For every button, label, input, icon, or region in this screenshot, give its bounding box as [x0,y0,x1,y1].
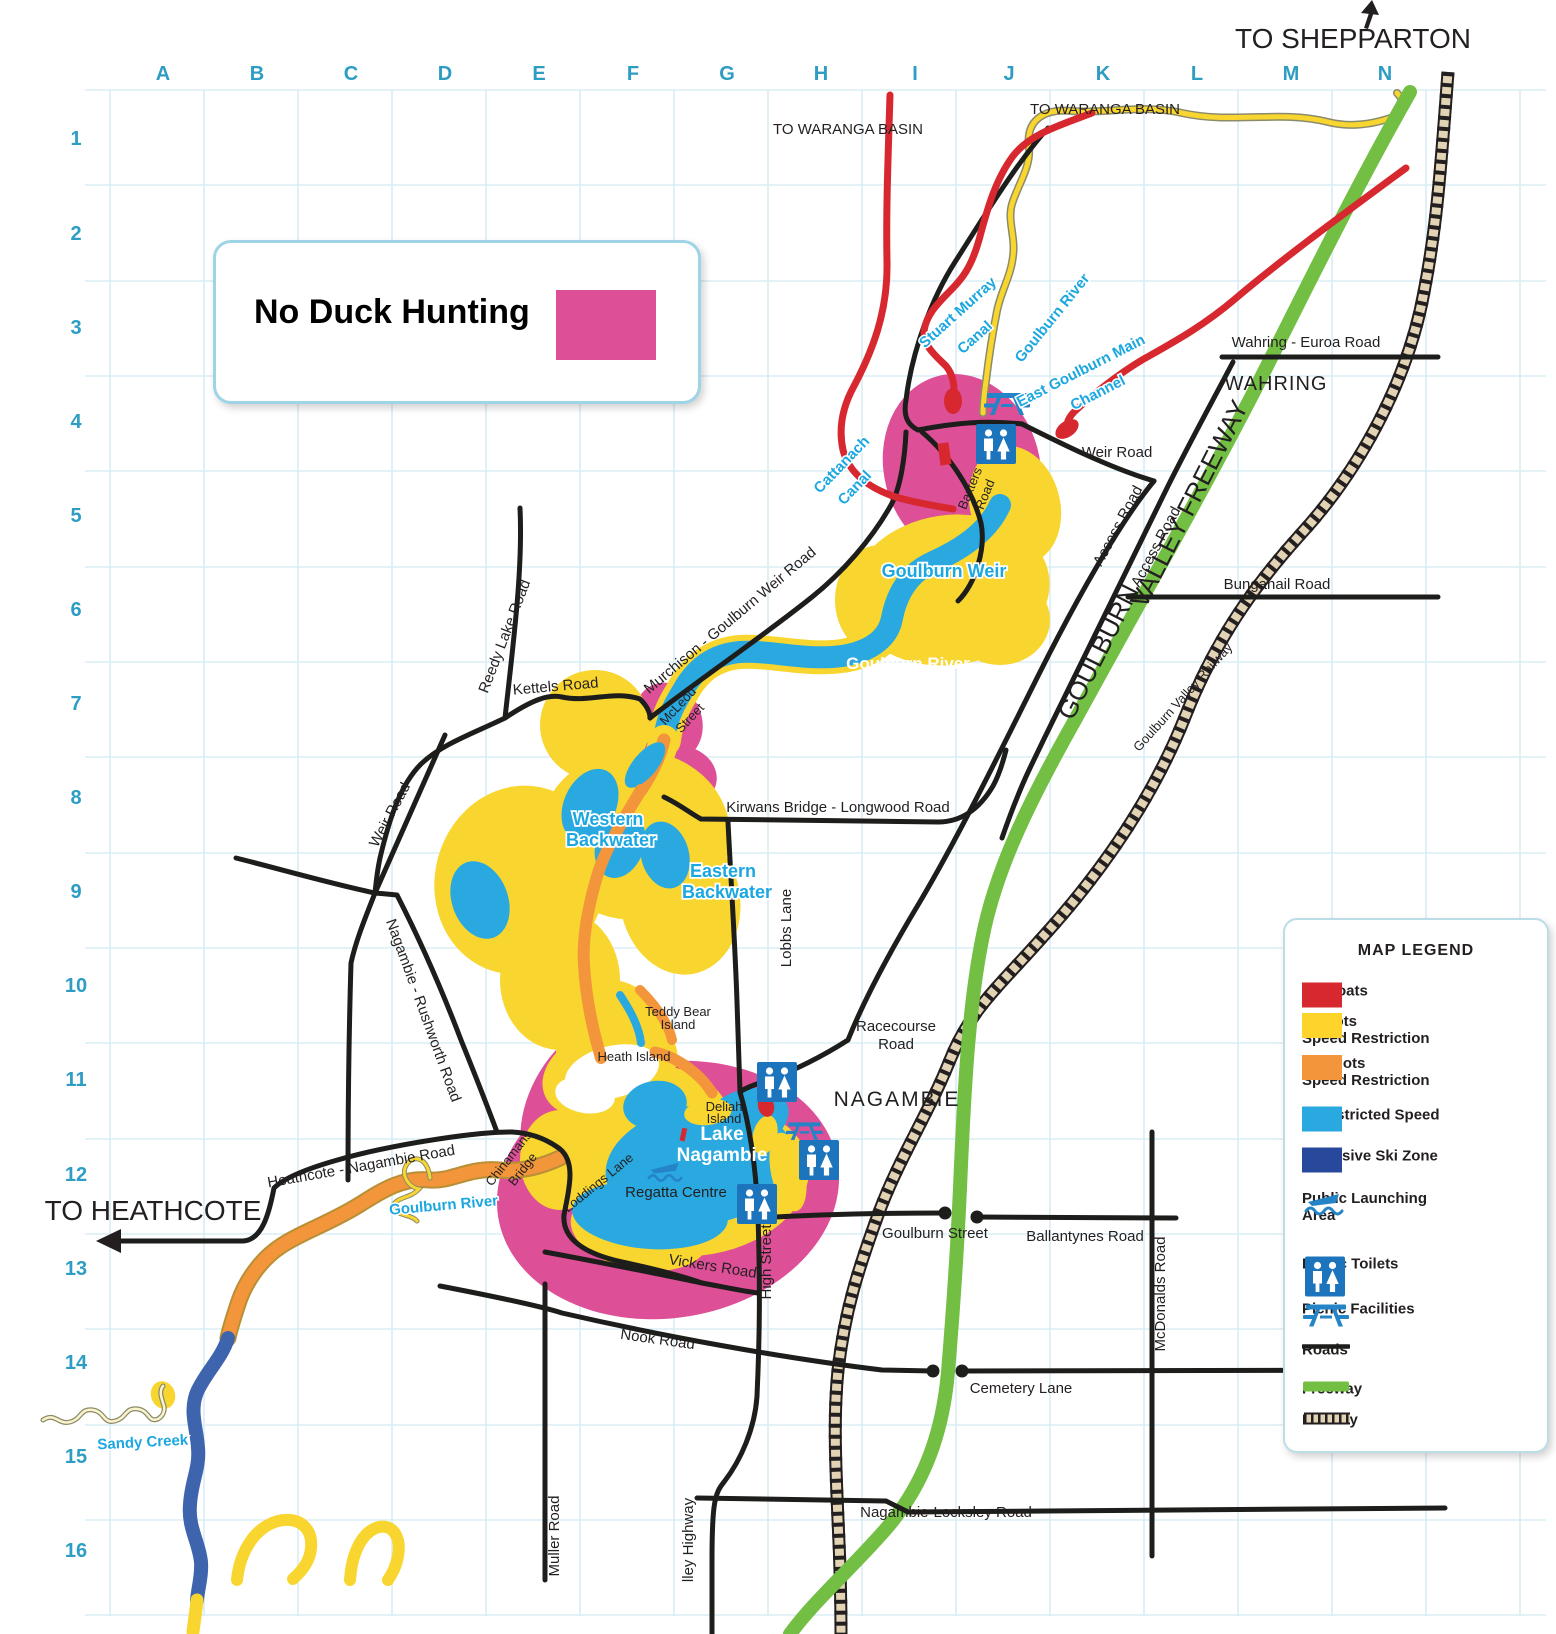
grid-col-label: L [1191,63,1203,85]
label-eastern-backwater: Backwater [682,882,772,902]
label-goulburn-weir: Goulburn Weir [882,561,1007,581]
label-goulburn-street: Goulburn Street [882,1225,989,1242]
label-goulburn-river-upper: Goulburn River [1012,270,1094,366]
label-valley-highway: lley Highway [680,1497,697,1582]
grid-col-label: M [1283,63,1300,85]
grid-col-label: C [344,63,358,85]
label-weir-road-east: Weir Road [1082,444,1153,461]
grid-row-label: 9 [70,881,81,903]
railway-line-key [1302,1412,1352,1426]
ski-zone-river [190,1338,228,1600]
legend-item-20-knots: 20 KnotsSpeed Restriction [1302,1055,1530,1089]
label-wahring-town: WAHRING [1225,373,1328,395]
no-duck-hunting-swatch [556,290,656,360]
label-nagambie-town: NAGAMBIE [834,1088,961,1111]
label-nook-road: Nook Road [619,1326,696,1353]
river-yellow-tip [193,1600,197,1632]
grid-col-label: N [1378,63,1392,85]
goulburn-river-upper-casing [983,93,1403,413]
label-lobbs-lane: Lobbs Lane [778,889,795,967]
road-line-key [1302,1342,1350,1352]
grid-row-label: 2 [70,223,81,245]
label-to-shepparton: TO SHEPPARTON [1235,23,1471,54]
label-high-street: High Street [758,1224,775,1300]
legend-item-ski-zone: Exclusive Ski Zone [1302,1148,1530,1165]
grid-row-label: 14 [65,1352,88,1374]
label-wahring-euroa-road: Wahring - Euroa Road [1232,334,1381,351]
road-weir-west-branch [236,858,375,1180]
toilets-icon [1302,1256,1348,1298]
stuart-murray-canal [924,113,1092,391]
label-reedy-lake-road: Reedy Lake Road [475,577,534,695]
grid-row-label: 13 [65,1258,87,1280]
legend-item-roads: Roads [1302,1342,1530,1359]
legend-item-launching: Public LaunchingArea [1302,1190,1530,1224]
grid-col-label: I [912,63,918,85]
map-stage: A B C D E F G H I J K L M N 1 2 3 4 5 6 … [0,0,1556,1634]
grid-row-label: 12 [65,1164,87,1186]
boat-launch-icon [1302,1190,1348,1216]
label-lake-nagambie: Lake [700,1124,743,1145]
grid-row-label: 16 [65,1540,87,1562]
grid-row-label: 7 [70,693,81,715]
label-sandy-creek: Sandy Creek [97,1432,189,1454]
toilets-icon [799,1140,839,1180]
no-boats-swatch [1302,983,1342,1008]
label-racecourse-road: Racecourse [856,1018,936,1035]
grid-col-label: E [532,63,545,85]
legend-item-5-knots: 5 KnotsSpeed Restriction [1302,1013,1530,1047]
legend-item-toilets: Public Toilets [1302,1256,1530,1273]
label-regatta-centre: Regatta Centre [625,1184,727,1201]
goulburn-river-upper [983,93,1403,413]
legend-item-no-boats: No Boats [1302,983,1530,1000]
grid-row-labels: 1 2 3 4 5 6 7 8 9 10 11 12 13 14 15 16 [65,128,88,1562]
ski-zone-swatch [1302,1148,1342,1173]
grid-col-label: F [627,63,639,85]
no-duck-hunting-box: No Duck Hunting [213,240,701,404]
label-muller-road: Muller Road [546,1496,563,1577]
grid-col-label: J [1003,63,1014,85]
label-access-road-a: Access Road [1090,483,1146,569]
label-western-backwater: Backwater [566,830,656,850]
grid-row-label: 1 [70,128,81,150]
label-racecourse-road: Road [878,1036,914,1053]
freeway-line-key [1302,1381,1350,1393]
label-to-heathcote: TO HEATHCOTE [45,1195,262,1226]
5-knots-swatch [1302,1013,1342,1038]
unrestricted-swatch [1302,1107,1342,1132]
toilets-icon [976,424,1016,464]
to-heathcote-arrow [96,1229,121,1253]
no-duck-hunting-label: No Duck Hunting [254,293,530,332]
grid-row-label: 15 [65,1446,87,1468]
legend-title: MAP LEGEND [1285,942,1547,960]
toilets-icon [737,1184,777,1224]
toilets-icon [757,1062,797,1102]
20-knots-swatch [1302,1055,1342,1080]
grid-row-label: 4 [70,411,82,433]
label-bunganail-road: Bunganail Road [1224,576,1331,593]
marker-stuart-murray [944,388,962,414]
label-to-waranga-basin-a: TO WARANGA BASIN [773,121,923,138]
grid-row-label: 11 [65,1069,86,1091]
label-cemetery-lane: Cemetery Lane [970,1380,1073,1397]
legend-item-unrestricted: Unrestricted Speed [1302,1107,1530,1124]
label-western-backwater: Western [573,809,644,829]
grid-column-labels: A B C D E F G H I J K L M N [156,63,1392,85]
label-lake-nagambie: Nagambie [677,1145,768,1166]
legend-item-freeway: Freeway [1302,1381,1530,1398]
grid-col-label: K [1096,63,1111,85]
grid-col-label: B [250,63,264,85]
label-mcdonalds-road: McDonalds Road [1152,1236,1169,1351]
legend-item-picnic: Picnic Facilities [1302,1301,1530,1318]
map-legend: MAP LEGEND No Boats 5 KnotsSpeed Restric… [1283,918,1549,1453]
grid-row-label: 10 [65,975,87,997]
grid-col-label: A [156,63,170,85]
sandy-creek [43,1386,164,1422]
road-ballantynes [977,1217,1176,1218]
grid-row-label: 6 [70,599,81,621]
label-teddy-bear-island: Island [661,1017,696,1032]
grid-col-label: G [719,63,735,85]
legend-item-railway: Railway [1302,1412,1530,1429]
grid-col-label: D [438,63,452,85]
picnic-icon [1302,1301,1350,1328]
grid-row-label: 5 [70,505,81,527]
grid-col-label: H [814,63,828,85]
grid-row-label: 3 [70,317,81,339]
label-kirwans-road: Kirwans Bridge - Longwood Road [726,799,949,816]
label-goulburn-river-mid: Goulburn River [846,654,970,673]
label-nagambie-locksley-road: Nagambie-Locksley Road [860,1504,1032,1521]
label-heath-island: Heath Island [598,1049,671,1064]
label-to-waranga-basin-b: TO WARANGA BASIN [1030,101,1180,118]
grid-row-label: 8 [70,787,81,809]
label-ballantynes-road: Ballantynes Road [1026,1228,1144,1245]
bottom-lagoon-arcs [237,1520,399,1580]
label-eastern-backwater: Eastern [690,861,756,881]
